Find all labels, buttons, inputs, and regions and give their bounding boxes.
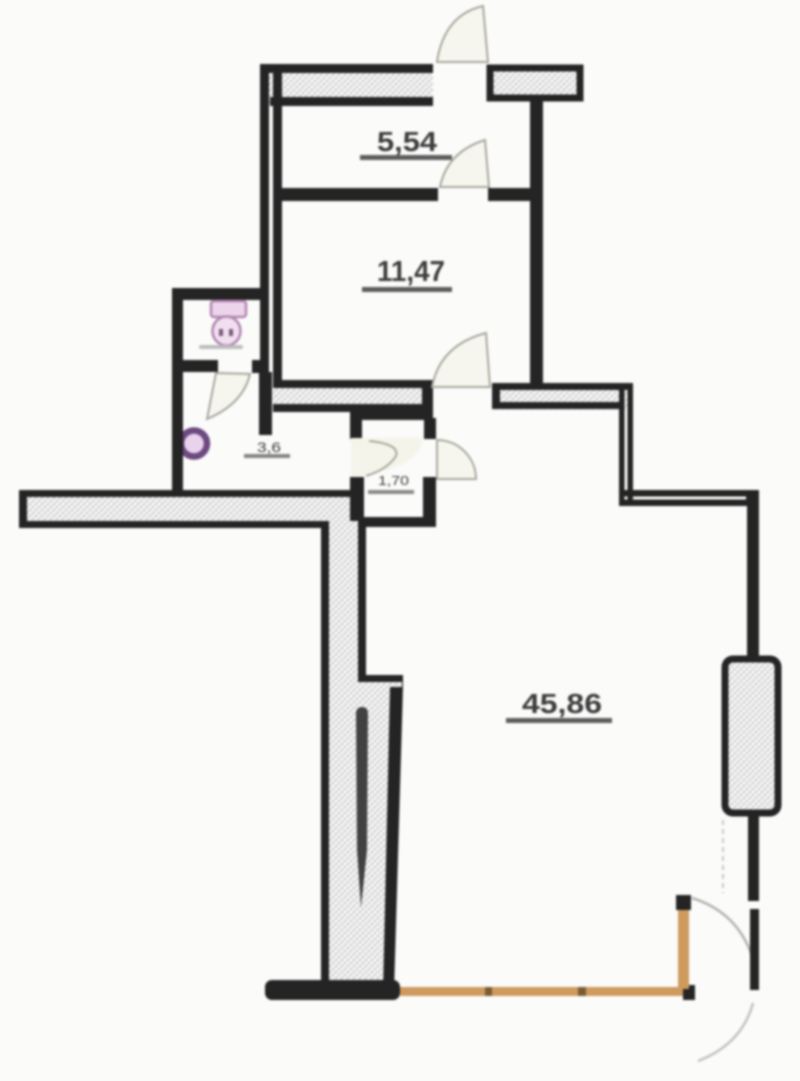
- svg-text:11,47: 11,47: [377, 256, 445, 288]
- svg-text:1,70: 1,70: [378, 473, 409, 488]
- svg-text:5,54: 5,54: [377, 126, 437, 157]
- svg-text:45,86: 45,86: [522, 688, 602, 719]
- svg-text:3,6: 3,6: [257, 439, 281, 455]
